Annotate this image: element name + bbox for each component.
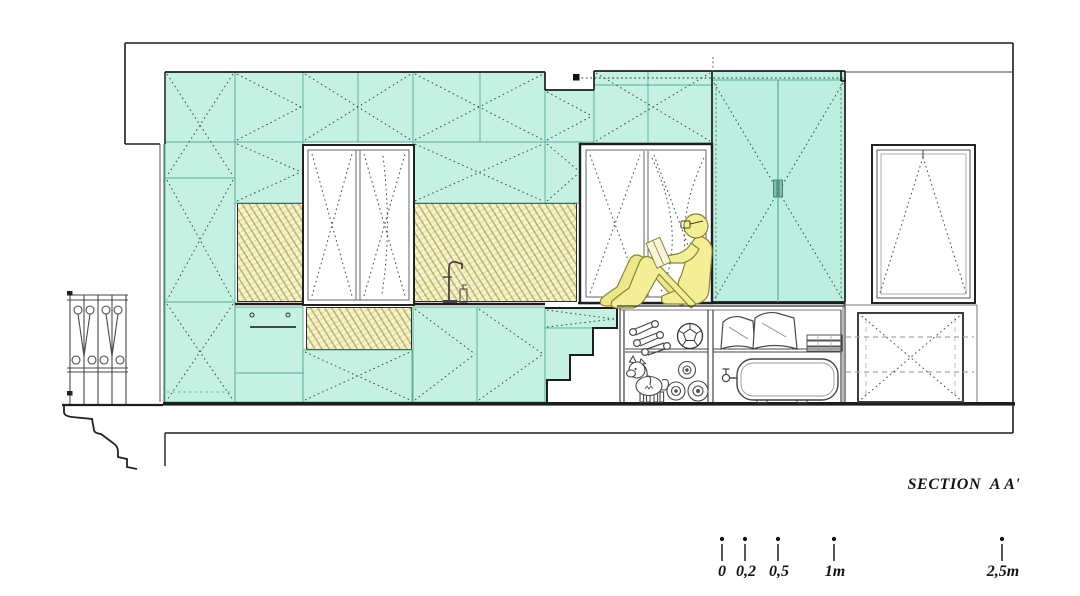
pillows-icon	[721, 313, 797, 349]
scale-label-2-5m: 2,5m	[987, 563, 1019, 581]
wardrobe-handle	[779, 180, 783, 197]
wardrobe-handle	[774, 180, 778, 197]
scale-label-0: 0	[718, 563, 726, 581]
section-title: SECTION A A'	[908, 476, 1021, 494]
scale-label-0-5: 0,5	[769, 563, 789, 581]
section-drawing: SECTION A A' 0 0,2 0,5 1m 2,5m	[0, 0, 1080, 596]
dumbbells-icon	[630, 321, 671, 356]
soccer-ball-icon	[678, 324, 703, 349]
scale-bar	[720, 537, 1003, 561]
tilt-window	[872, 145, 975, 303]
dashed-storage-box	[843, 305, 977, 402]
cornice-molding	[64, 405, 137, 469]
balcony-railing	[67, 291, 128, 404]
scale-label-1m: 1m	[825, 563, 845, 581]
kitchen-faucet	[443, 262, 467, 303]
kitchen-window	[303, 145, 414, 305]
scale-label-0-2: 0,2	[736, 563, 756, 581]
rolled-mats-icon	[667, 362, 708, 402]
unicorn-toy-icon	[627, 356, 669, 402]
section-linework	[0, 0, 1080, 596]
water-tank-icon	[722, 359, 838, 403]
